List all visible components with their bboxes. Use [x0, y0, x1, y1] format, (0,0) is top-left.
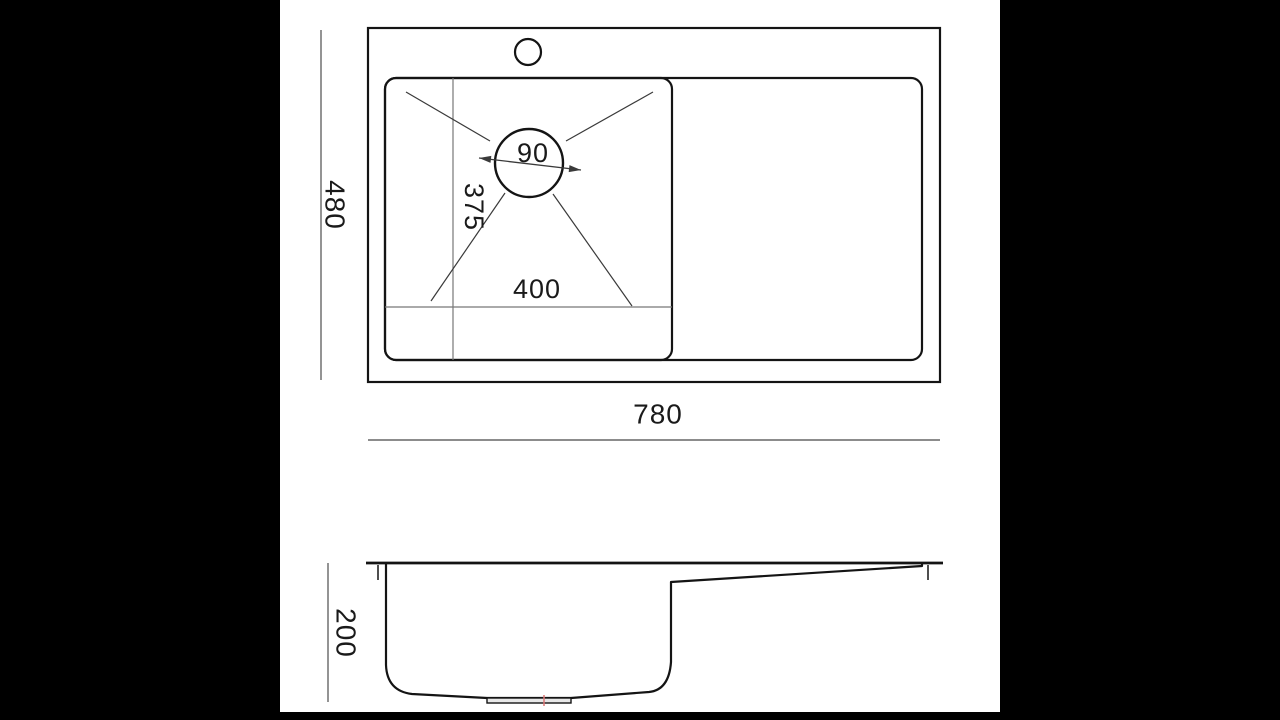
side-view: 200	[328, 563, 943, 706]
overall-width-label: 780	[633, 399, 683, 430]
bowl-depth-label: 375	[459, 183, 489, 231]
top-view-outer-rim	[368, 28, 940, 382]
top-view: 90 400 375 480 780	[320, 28, 941, 440]
side-height-label: 200	[331, 608, 362, 658]
overall-depth-label: 480	[320, 180, 351, 230]
bowl-width-label: 400	[513, 274, 561, 304]
screenshot-stage: 90 400 375 480 780	[0, 0, 1280, 720]
drain-diameter-label: 90	[517, 138, 549, 168]
bowl-section-profile	[386, 564, 922, 698]
sink-technical-drawing: 90 400 375 480 780	[0, 0, 1280, 720]
drain-fitting	[487, 698, 571, 703]
